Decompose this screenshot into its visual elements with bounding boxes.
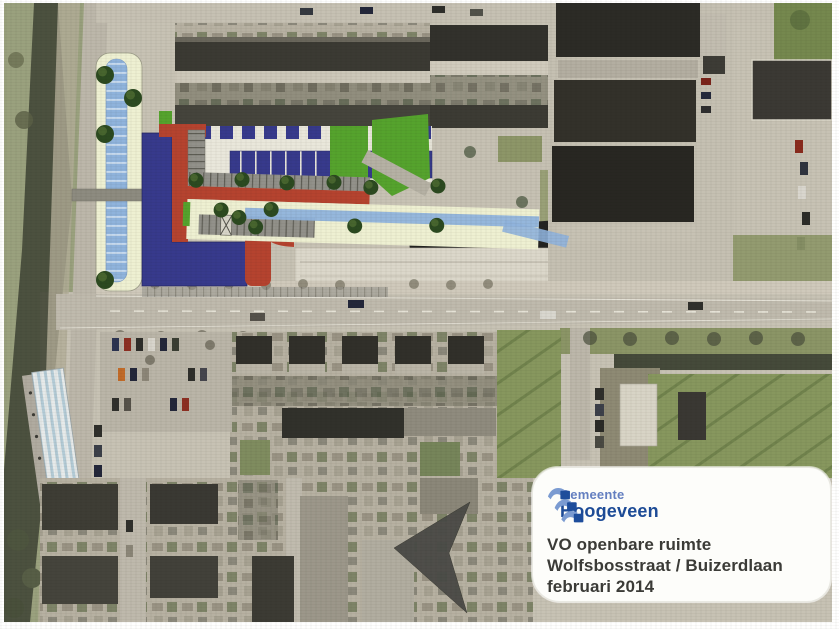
field-center — [497, 330, 561, 478]
housing-block-north-a — [175, 23, 430, 128]
dark-roof-building — [752, 60, 832, 120]
hedge-canal-east — [614, 354, 832, 370]
field-east — [648, 374, 832, 478]
plan-parking-row — [142, 287, 388, 297]
terrace-roof — [282, 408, 404, 438]
plan-canal — [106, 59, 127, 282]
municipality-logo: Gemeente Hoogeveen — [546, 484, 659, 521]
plan-title: VO openbare ruimte Wolfsbosstraat / Buiz… — [547, 534, 783, 597]
street-southeast — [570, 328, 590, 460]
housing-south — [230, 332, 497, 480]
plan-title-line-3: februari 2014 — [547, 576, 783, 597]
housing-block-north-b — [430, 25, 548, 128]
southeast-area — [497, 328, 832, 478]
plan-title-line-2: Wolfsbosstraat / Buizerdlaan — [547, 555, 783, 576]
gemeente-hoogeveen-logo-icon — [546, 484, 592, 530]
apartment-blocks-east — [548, 3, 734, 290]
info-box: Gemeente Hoogeveen VO openbare ruimte Wo… — [532, 467, 831, 602]
parking-lot-southwest — [100, 332, 232, 432]
plan-title-line-1: VO openbare ruimte — [547, 534, 783, 555]
planning-map: Gemeente Hoogeveen VO openbare ruimte Wo… — [0, 0, 839, 629]
plan-bridge — [72, 189, 146, 201]
